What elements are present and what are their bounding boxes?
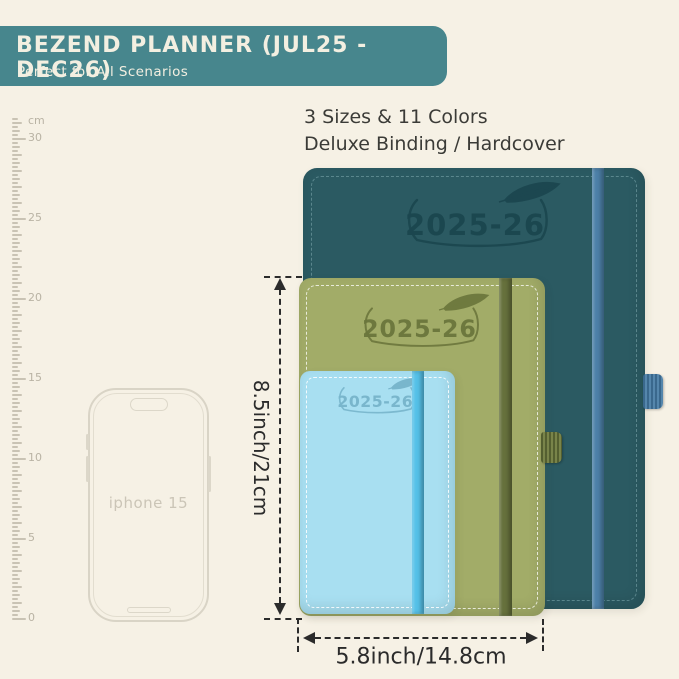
ruler-tick xyxy=(12,534,18,536)
width-dim-arrow-right xyxy=(526,632,538,644)
feather-icon xyxy=(439,294,488,310)
ruler-tick xyxy=(12,570,22,572)
ruler-tick xyxy=(12,178,20,180)
ruler-tick xyxy=(12,586,22,588)
headline-line2: Deluxe Binding / Hardcover xyxy=(304,131,565,158)
ruler-tick xyxy=(12,158,18,160)
ruler-tick xyxy=(12,494,18,496)
ruler-tick xyxy=(12,490,22,492)
ruler-tick xyxy=(12,394,22,396)
ruler-tick xyxy=(12,386,20,388)
ruler-tick xyxy=(12,366,18,368)
headline-line1: 3 Sizes & 11 Colors xyxy=(304,104,565,131)
ruler-tick xyxy=(12,270,18,272)
ruler-tick xyxy=(12,350,18,352)
ruler-tick xyxy=(12,406,18,408)
height-dim-arrow-down xyxy=(274,603,286,615)
phone-label: iphone 15 xyxy=(90,494,207,512)
ruler-tick xyxy=(12,298,26,300)
ruler-tick xyxy=(12,530,20,532)
ruler-tick xyxy=(12,546,20,548)
ruler-number: 15 xyxy=(28,371,42,384)
ruler-tick xyxy=(12,466,20,468)
ruler-tick xyxy=(12,446,18,448)
ruler-tick xyxy=(12,566,18,568)
ruler-tick xyxy=(12,250,22,252)
ruler-tick xyxy=(12,182,18,184)
ruler-tick xyxy=(12,142,18,144)
ruler-tick xyxy=(12,482,20,484)
ruler-tick xyxy=(12,498,20,500)
height-dim-label: 8.5inch/21cm xyxy=(249,380,273,516)
ruler-tick xyxy=(12,542,18,544)
ruler-tick xyxy=(12,214,18,216)
product-image-canvas: BEZEND PLANNER (JUL25 - DEC26) Perfect f… xyxy=(0,0,679,679)
ruler-tick xyxy=(12,606,18,608)
ruler-tick xyxy=(12,130,20,132)
phone-power-button xyxy=(208,456,211,492)
ruler-tick xyxy=(12,370,20,372)
ruler-tick xyxy=(12,590,18,592)
ruler-tick xyxy=(12,346,22,348)
ruler-tick xyxy=(12,454,18,456)
ruler-tick xyxy=(12,414,18,416)
ruler-tick xyxy=(12,186,22,188)
ruler-tick xyxy=(12,554,22,556)
ruler-tick xyxy=(12,262,18,264)
ruler-tick xyxy=(12,398,18,400)
ruler-tick xyxy=(12,594,20,596)
ruler-tick xyxy=(12,278,18,280)
ruler-tick xyxy=(12,210,20,212)
ruler-tick xyxy=(12,154,22,156)
ruler-tick xyxy=(12,242,20,244)
ruler-tick xyxy=(12,510,18,512)
ruler-tick xyxy=(12,514,20,516)
width-dim-arrow-left xyxy=(303,632,315,644)
ruler-tick xyxy=(12,234,22,236)
ruler-tick xyxy=(12,518,18,520)
ruler-unit-label: cm xyxy=(28,114,45,127)
year-emboss-logo: 2025-26 xyxy=(332,377,424,416)
ruler-tick xyxy=(12,458,26,460)
ruler-tick xyxy=(12,334,18,336)
ruler-tick xyxy=(12,462,18,464)
width-dim-tick-left xyxy=(297,618,299,652)
svg-text:2025-26: 2025-26 xyxy=(337,392,413,411)
phone-home-indicator xyxy=(127,607,171,613)
ruler-tick xyxy=(12,238,18,240)
ruler-tick xyxy=(12,474,22,476)
width-dim-tick-right xyxy=(542,619,544,651)
ruler-tick xyxy=(12,442,22,444)
ruler-tick xyxy=(12,274,20,276)
width-dim-line xyxy=(315,637,526,639)
ruler-tick xyxy=(12,162,20,164)
ruler-tick xyxy=(12,230,18,232)
ruler-tick xyxy=(12,562,20,564)
headline: 3 Sizes & 11 Colors Deluxe Binding / Har… xyxy=(304,104,565,158)
ruler-tick xyxy=(12,618,26,620)
ruler-tick xyxy=(12,322,20,324)
ruler-tick xyxy=(12,286,18,288)
ruler-tick xyxy=(12,122,22,124)
ruler-tick xyxy=(12,198,18,200)
ruler-tick xyxy=(12,302,18,304)
ruler-tick xyxy=(12,118,18,120)
ruler-tick xyxy=(12,522,22,524)
ruler-tick xyxy=(12,602,22,604)
ruler-tick xyxy=(12,338,20,340)
ruler-tick xyxy=(12,190,18,192)
ruler-tick xyxy=(12,174,18,176)
planner-small: 2025-26 xyxy=(300,371,455,614)
ruler-tick xyxy=(12,382,18,384)
ruler-tick xyxy=(12,222,18,224)
ruler-tick xyxy=(12,310,18,312)
ruler-tick xyxy=(12,254,18,256)
ruler-tick xyxy=(12,526,18,528)
ruler-tick xyxy=(12,330,22,332)
ruler-tick xyxy=(12,550,18,552)
svg-text:2025-26: 2025-26 xyxy=(362,315,477,343)
ruler-tick xyxy=(12,362,22,364)
ruler-tick xyxy=(12,426,22,428)
ruler-tick xyxy=(12,314,22,316)
ruler-number: 25 xyxy=(28,211,42,224)
ruler-tick xyxy=(12,170,22,172)
ruler-tick xyxy=(12,326,18,328)
ruler-tick xyxy=(12,538,26,540)
ruler-tick xyxy=(12,126,18,128)
phone-dynamic-island xyxy=(130,398,168,411)
ruler-tick xyxy=(12,478,18,480)
ruler-tick xyxy=(12,418,20,420)
ruler-tick xyxy=(12,202,22,204)
ruler-tick xyxy=(12,258,20,260)
ruler-tick xyxy=(12,358,18,360)
year-emboss-logo: 2025-26 xyxy=(395,180,565,252)
ruler-tick xyxy=(12,422,18,424)
ruler-tick xyxy=(12,390,18,392)
elastic-band xyxy=(499,278,512,616)
ruler-tick xyxy=(12,194,20,196)
pen-loop xyxy=(643,374,663,409)
ruler-tick xyxy=(12,558,18,560)
ruler-tick xyxy=(12,598,18,600)
ruler-tick xyxy=(12,266,22,268)
ruler-tick xyxy=(12,206,18,208)
svg-text:2025-26: 2025-26 xyxy=(405,208,545,242)
ruler-tick xyxy=(12,294,18,296)
ruler-tick xyxy=(12,506,22,508)
ruler-tick xyxy=(12,282,22,284)
ruler-tick xyxy=(12,430,18,432)
ruler-tick xyxy=(12,218,26,220)
ruler-tick xyxy=(12,306,20,308)
ruler-tick xyxy=(12,290,20,292)
elastic-band xyxy=(592,168,604,609)
ruler-tick xyxy=(12,434,20,436)
ruler-tick xyxy=(12,138,26,140)
width-dim-label: 5.8inch/14.8cm xyxy=(335,645,506,670)
ruler-tick xyxy=(12,574,18,576)
ruler-tick xyxy=(12,246,18,248)
ruler-tick xyxy=(12,578,20,580)
ruler-tick xyxy=(12,610,20,612)
elastic-band xyxy=(412,371,424,614)
ruler-tick xyxy=(12,150,18,152)
ruler-tick xyxy=(12,226,20,228)
pen-loop xyxy=(541,432,562,463)
ruler-tick xyxy=(12,166,18,168)
phone-volume-button xyxy=(86,434,89,450)
ruler-tick xyxy=(12,582,18,584)
ruler-tick xyxy=(12,146,20,148)
ruler-tick xyxy=(12,374,18,376)
height-dim-line xyxy=(279,289,281,603)
ruler-tick xyxy=(12,402,20,404)
ruler-tick xyxy=(12,450,20,452)
ruler-tick xyxy=(12,614,18,616)
phone-outline: iphone 15 xyxy=(88,388,209,622)
ruler-tick xyxy=(12,502,18,504)
ruler-tick xyxy=(12,486,18,488)
ruler-number: 30 xyxy=(28,131,42,144)
ruler-tick xyxy=(12,354,20,356)
ruler-tick xyxy=(12,134,18,136)
ruler-tick xyxy=(12,410,22,412)
ruler-tick xyxy=(12,318,18,320)
ruler-tick xyxy=(12,342,18,344)
ruler-tick xyxy=(12,438,18,440)
ruler-number: 0 xyxy=(28,611,35,624)
phone-volume-button xyxy=(86,456,89,482)
feather-icon xyxy=(499,183,559,202)
ruler-tick xyxy=(12,378,26,380)
year-emboss-logo: 2025-26 xyxy=(354,292,493,351)
ruler-number: 20 xyxy=(28,291,42,304)
ruler-number: 5 xyxy=(28,531,35,544)
ruler-tick xyxy=(12,470,18,472)
ruler-number: 10 xyxy=(28,451,42,464)
